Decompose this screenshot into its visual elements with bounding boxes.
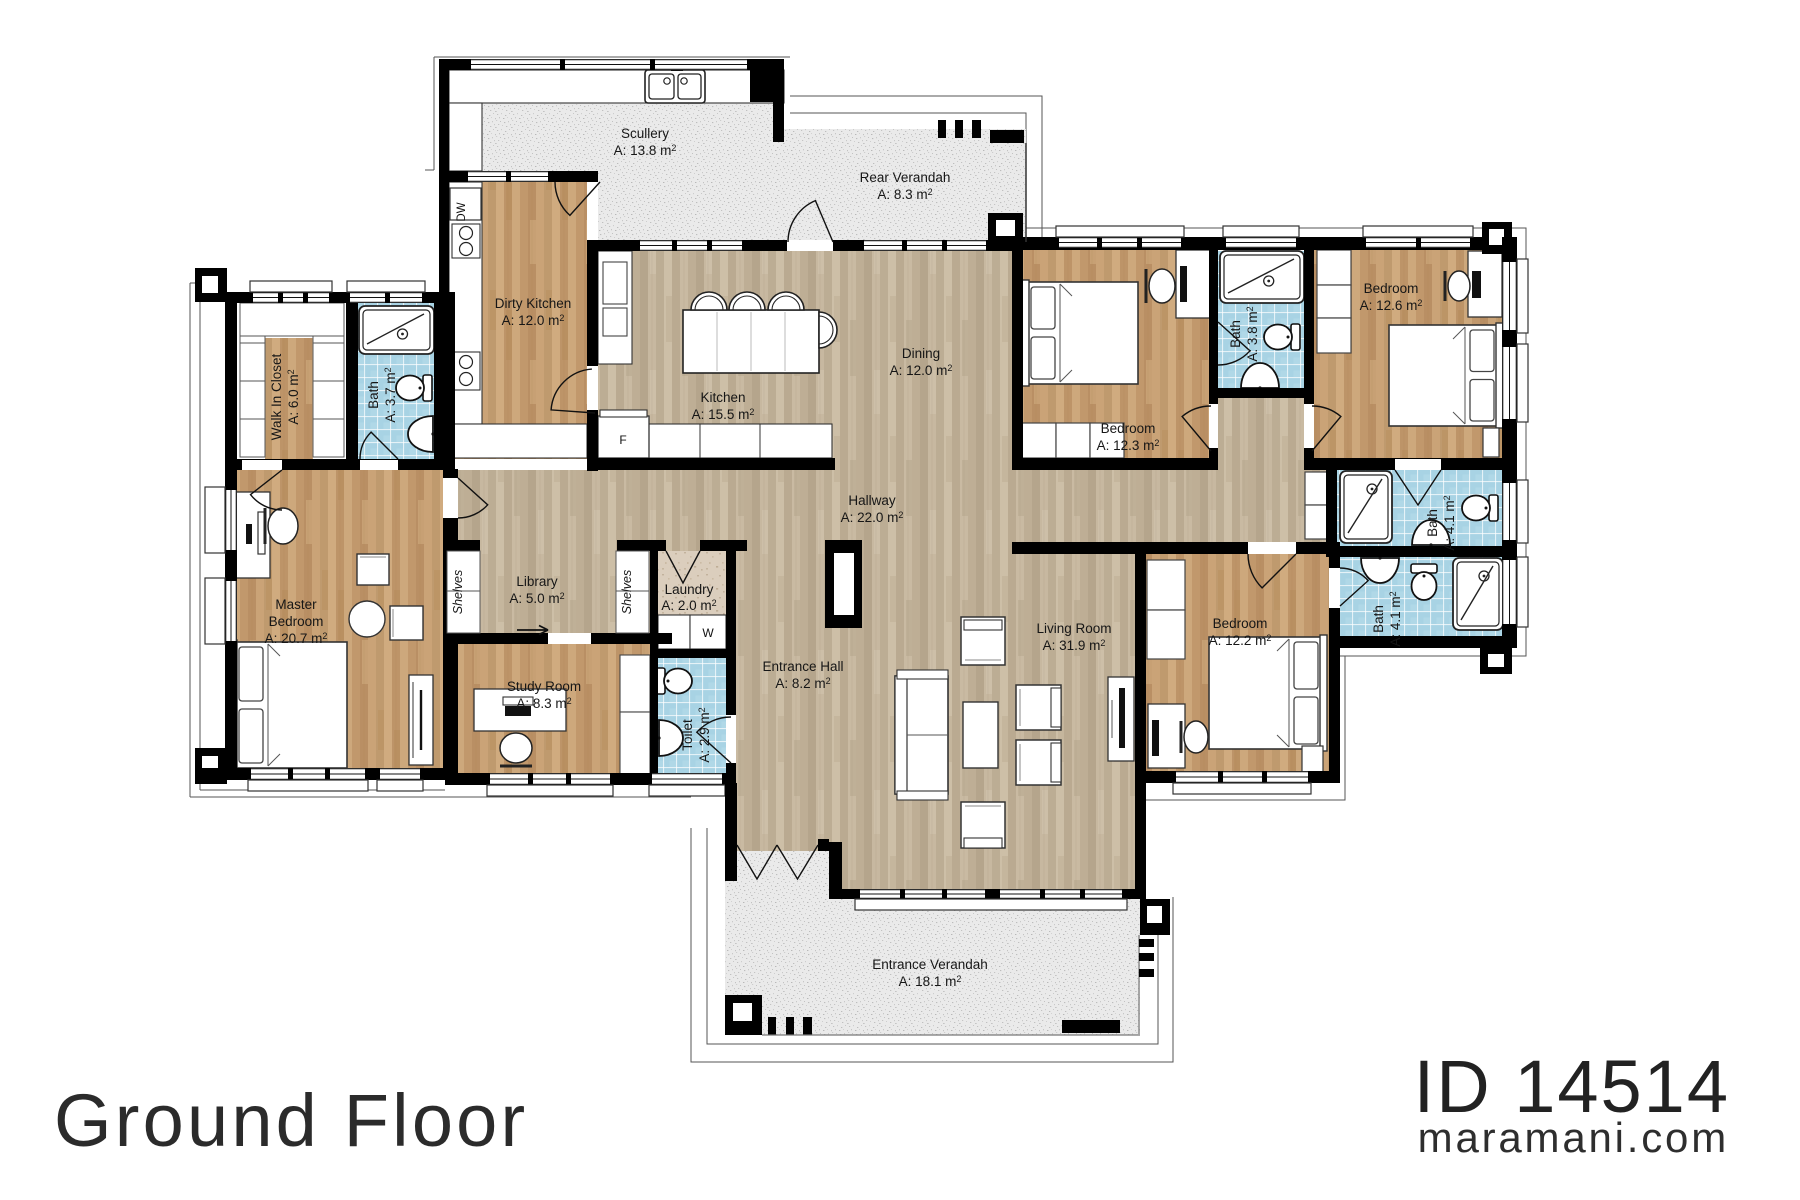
svg-text:Kitchen: Kitchen: [700, 390, 745, 405]
svg-text:A: 3.8 m2: A: 3.8 m2: [1245, 306, 1260, 361]
svg-text:F: F: [619, 433, 626, 447]
svg-text:A: 22.0 m2: A: 22.0 m2: [841, 510, 904, 525]
svg-text:W: W: [702, 626, 714, 640]
svg-text:A: 2.0 m2: A: 2.0 m2: [661, 598, 716, 613]
svg-text:A: 31.9 m2: A: 31.9 m2: [1043, 638, 1106, 653]
svg-text:Bath: Bath: [1425, 509, 1440, 537]
svg-text:Living Room: Living Room: [1036, 621, 1111, 636]
svg-text:A: 20.7 m2: A: 20.7 m2: [265, 631, 328, 646]
svg-text:Toilet: Toilet: [680, 719, 695, 751]
svg-text:maramani.com: maramani.com: [1418, 1114, 1729, 1161]
svg-text:Bath: Bath: [1228, 320, 1243, 348]
svg-text:A: 12.6 m2: A: 12.6 m2: [1360, 298, 1423, 313]
svg-text:Walk In Closet: Walk In Closet: [269, 353, 284, 440]
svg-text:Shelves: Shelves: [620, 570, 634, 614]
svg-text:A: 4.1 m2: A: 4.1 m2: [1442, 495, 1457, 550]
svg-text:Scullery: Scullery: [621, 126, 669, 141]
svg-text:A: 6.0 m2: A: 6.0 m2: [286, 369, 301, 424]
svg-text:Entrance Hall: Entrance Hall: [762, 659, 843, 674]
svg-text:Dining: Dining: [902, 346, 940, 361]
svg-text:A: 8.3 m2: A: 8.3 m2: [877, 187, 932, 202]
svg-text:A: 18.1 m2: A: 18.1 m2: [899, 974, 962, 989]
svg-text:Bedroom: Bedroom: [1364, 281, 1419, 296]
svg-text:Hallway: Hallway: [848, 493, 896, 508]
svg-text:Bedroom: Bedroom: [1101, 421, 1156, 436]
svg-text:A: 13.8 m2: A: 13.8 m2: [614, 143, 677, 158]
svg-text:Shelves: Shelves: [451, 570, 465, 614]
svg-text:Bedroom: Bedroom: [269, 614, 324, 629]
svg-text:Entrance Verandah: Entrance Verandah: [872, 957, 988, 972]
svg-text:Study Room: Study Room: [507, 679, 581, 694]
svg-text:Bath: Bath: [1371, 605, 1386, 633]
svg-text:A: 2.9 m2: A: 2.9 m2: [697, 707, 712, 762]
svg-text:A: 8.2 m2: A: 8.2 m2: [775, 676, 830, 691]
svg-text:A: 3.7 m2: A: 3.7 m2: [383, 367, 398, 422]
svg-text:Master: Master: [275, 597, 317, 612]
svg-text:Library: Library: [516, 574, 558, 589]
svg-text:A: 12.3 m2: A: 12.3 m2: [1097, 438, 1160, 453]
svg-text:Rear Verandah: Rear Verandah: [860, 170, 951, 185]
svg-text:Dirty Kitchen: Dirty Kitchen: [495, 296, 572, 311]
svg-text:A: 12.0 m2: A: 12.0 m2: [890, 363, 953, 378]
svg-text:A: 4.1 m2: A: 4.1 m2: [1388, 591, 1403, 646]
svg-text:A: 15.5 m2: A: 15.5 m2: [692, 407, 755, 422]
svg-text:A: 12.0 m2: A: 12.0 m2: [502, 313, 565, 328]
svg-text:A: 5.0 m2: A: 5.0 m2: [509, 591, 564, 606]
svg-text:DW: DW: [456, 202, 468, 221]
svg-text:Bedroom: Bedroom: [1213, 616, 1268, 631]
svg-text:Ground Floor: Ground Floor: [54, 1079, 528, 1162]
svg-text:A: 8.3 m2: A: 8.3 m2: [516, 696, 571, 711]
svg-text:A: 12.2 m2: A: 12.2 m2: [1209, 633, 1272, 648]
svg-text:Laundry: Laundry: [665, 582, 714, 597]
svg-text:Bath: Bath: [366, 381, 381, 409]
